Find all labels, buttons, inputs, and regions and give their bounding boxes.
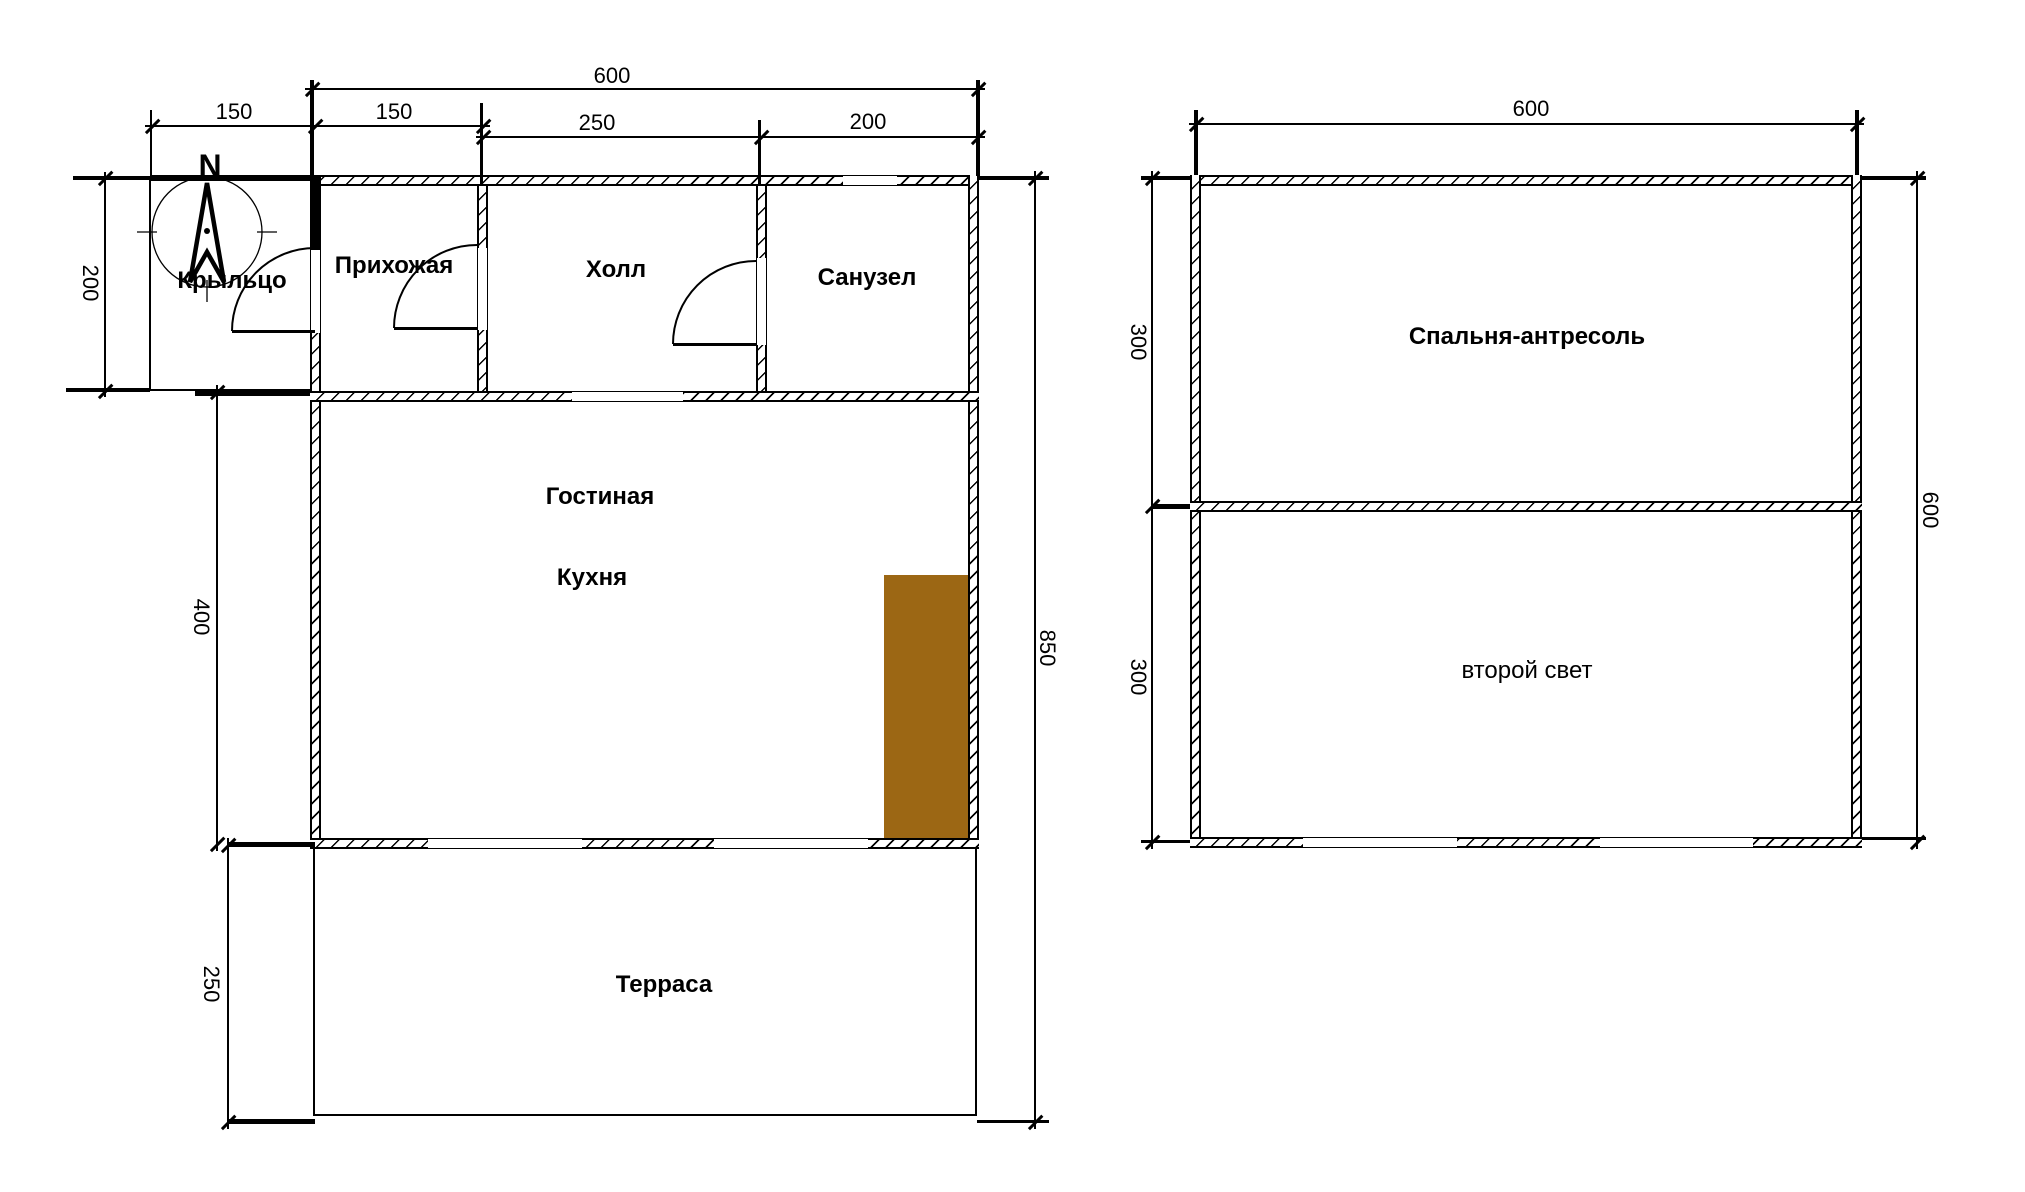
compass-north-label: N	[198, 148, 221, 184]
kitchen-unit	[884, 575, 968, 838]
dim-850-right: 850	[1034, 630, 1060, 667]
drawing-overlay: N	[0, 0, 2025, 1192]
dim-200-bathroom: 200	[850, 109, 887, 135]
floor-plan-drawing: N Крыльцо Прихожая Холл Санузел Гостиная…	[0, 0, 2025, 1192]
dim-300-lower: 300	[1125, 659, 1151, 696]
room-label-hallway: Прихожая	[335, 252, 453, 280]
room-label-hall: Холл	[586, 256, 646, 284]
dim-600-floor1: 600	[594, 63, 631, 89]
room-label-living: Гостиная	[546, 483, 654, 511]
room-label-terrace: Терраса	[616, 971, 712, 999]
dim-300-upper: 300	[1125, 324, 1151, 361]
door-arc-bathroom	[673, 261, 756, 344]
dim-250-hall: 250	[579, 110, 616, 136]
room-label-bathroom: Санузел	[818, 264, 917, 292]
dim-150-porch: 150	[216, 99, 253, 125]
dim-200-left: 200	[77, 265, 103, 302]
room-label-bedroom: Спальня-антресоль	[1409, 323, 1645, 351]
dim-600-floor2-top: 600	[1513, 96, 1550, 122]
dim-400-left: 400	[188, 599, 214, 636]
room-label-void: второй свет	[1461, 657, 1592, 685]
room-label-kitchen: Кухня	[557, 564, 627, 592]
dim-150-hallway: 150	[376, 99, 413, 125]
dim-600-floor2-right: 600	[1917, 492, 1943, 529]
room-label-porch: Крыльцо	[177, 267, 286, 295]
dim-250-left: 250	[198, 966, 224, 1003]
